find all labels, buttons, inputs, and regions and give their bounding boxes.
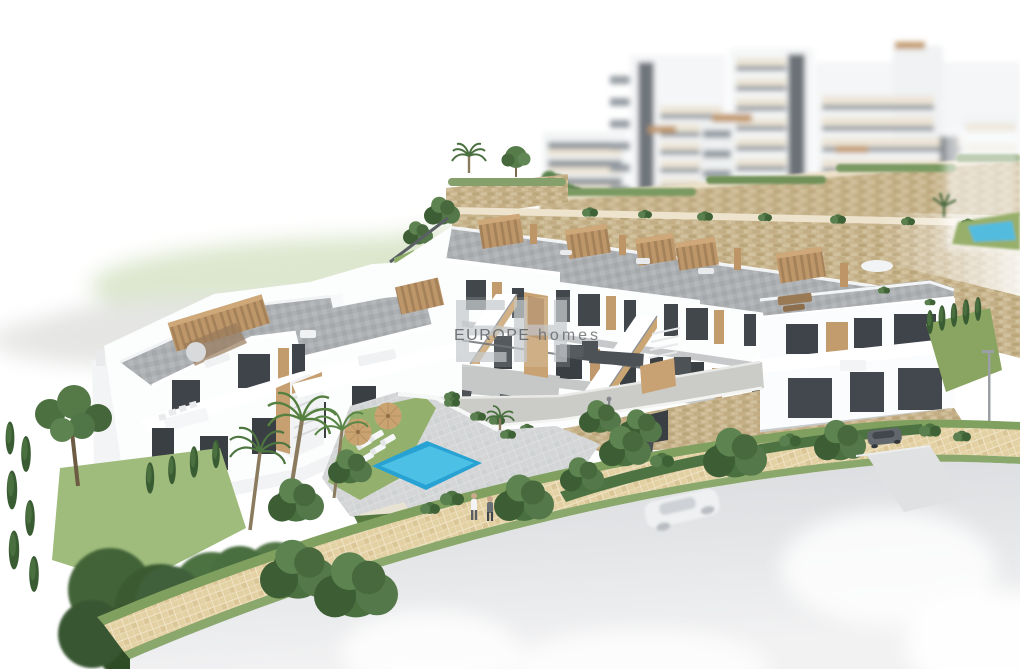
svg-text:EUROPE homes: EUROPE homes <box>454 327 601 344</box>
